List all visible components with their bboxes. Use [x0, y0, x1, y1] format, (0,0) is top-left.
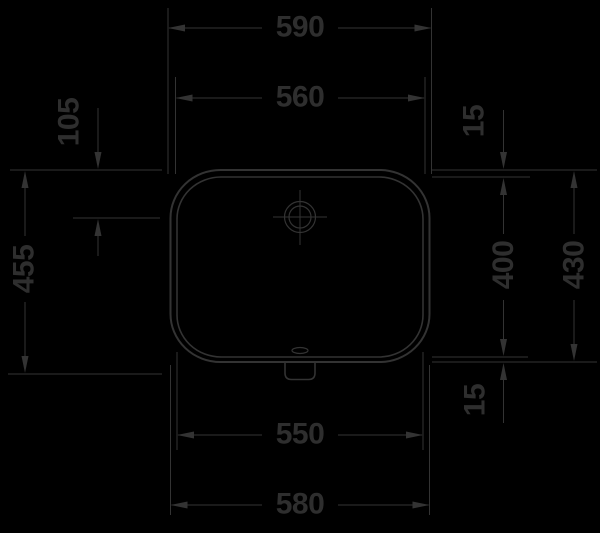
dim-label-15-top: 15: [458, 105, 491, 137]
dim-label-430: 430: [558, 241, 591, 290]
dim-430-group: 430: [558, 171, 591, 361]
dim-label-455: 455: [8, 245, 41, 294]
arrowhead-15bottom-up: [500, 363, 507, 380]
dim-label-105: 105: [53, 98, 86, 147]
arrowhead-400-top: [500, 178, 507, 195]
dim-560-group: 560: [176, 77, 426, 174]
dim-105-group: 105: [53, 98, 102, 256]
arrowhead-560-left: [176, 95, 193, 102]
drain-outlet-tab: [285, 362, 315, 380]
arrowhead-580-left: [171, 502, 188, 509]
dim-label-15-bottom: 15: [459, 384, 492, 416]
arrowhead-105-up: [95, 219, 102, 236]
arrowhead-590-left: [168, 25, 185, 32]
dim-chain-right-group: 15 400 15: [458, 105, 521, 423]
washbasin-dimension-drawing: 590 560 550 580: [0, 0, 600, 533]
drawing-canvas: 590 560 550 580: [0, 0, 600, 533]
arrowhead-455-top: [22, 171, 29, 188]
arrowhead-430-top: [571, 171, 578, 188]
dim-label-580: 580: [276, 488, 325, 521]
arrowhead-590-right: [415, 25, 432, 32]
dim-label-560: 560: [276, 81, 325, 114]
arrowhead-15top-down: [500, 152, 507, 169]
dim-455-group: 455: [8, 171, 41, 373]
overflow-slot: [292, 348, 308, 354]
arrowhead-580-right: [413, 502, 430, 509]
arrowhead-550-right: [406, 432, 423, 439]
arrowhead-455-bottom: [22, 356, 29, 373]
arrowhead-550-left: [177, 432, 194, 439]
arrowhead-560-right: [408, 95, 425, 102]
dim-label-400: 400: [487, 241, 520, 290]
dim-label-590: 590: [276, 11, 325, 44]
arrowhead-430-bottom: [571, 344, 578, 361]
dim-label-550: 550: [276, 418, 325, 451]
arrowhead-105-down: [95, 152, 102, 169]
basin-outline-group: [171, 170, 430, 380]
dim-550-group: 550: [177, 352, 423, 451]
arrowhead-400-bottom: [500, 339, 507, 356]
